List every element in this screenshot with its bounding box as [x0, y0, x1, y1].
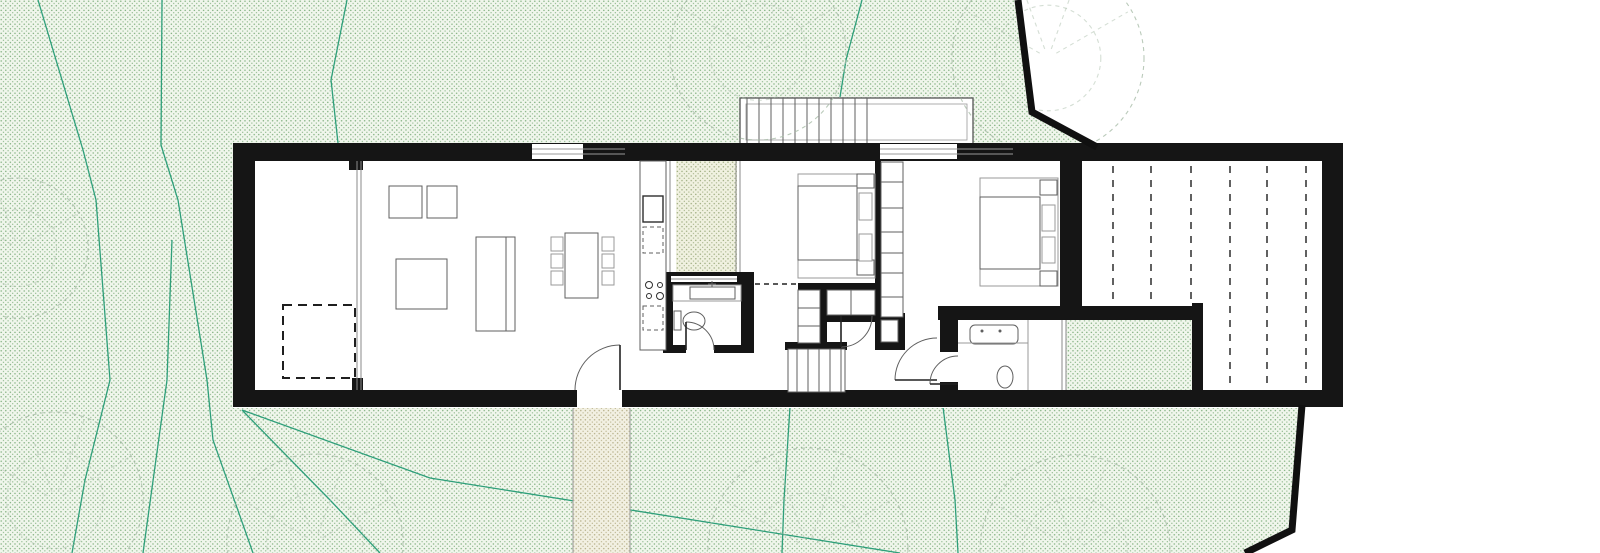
wall-west [233, 143, 255, 407]
wall-deck-east [1322, 148, 1343, 407]
entry-path [573, 407, 630, 553]
wardrobe-column [881, 162, 903, 317]
toilet-tank [674, 311, 681, 330]
bed-2-nightstand [1040, 180, 1057, 195]
site-plan-svg [0, 0, 1600, 553]
washbasin [690, 287, 735, 299]
entry-path [573, 407, 630, 553]
bed-2-nightstand [1040, 271, 1057, 286]
ottoman [396, 259, 447, 309]
wardrobe-cell [881, 320, 898, 342]
dining-table [565, 233, 598, 298]
armchair [389, 186, 422, 218]
dining-chair [602, 237, 614, 251]
kitchen-appliance [643, 196, 663, 222]
interior-stair [788, 349, 845, 392]
dining-chair [551, 271, 563, 285]
bed-1-nightstand [857, 174, 874, 188]
window [532, 144, 583, 159]
armchair [427, 186, 457, 218]
wall-deck-step [1192, 303, 1203, 390]
dining-chair [551, 254, 563, 268]
floor-plan-page [0, 0, 1600, 553]
bed-1-pillow [859, 234, 872, 261]
bed-2-mattress [980, 197, 1040, 269]
wall-north [233, 143, 1343, 161]
wall-bed2-deck [1060, 148, 1082, 320]
wall-closet-foot [875, 342, 905, 350]
bed-1-pillow [859, 193, 872, 220]
window [880, 144, 957, 159]
sofa [476, 237, 515, 331]
wall-bed1-south [798, 283, 881, 290]
wall-mid-band [938, 306, 1203, 320]
wall-powder-s2 [714, 345, 754, 353]
bed-2-pillow [1042, 237, 1055, 263]
courtyard-east [1066, 320, 1192, 390]
dining-chair [602, 254, 614, 268]
wall-powder-east [741, 272, 754, 345]
wall-closet-west [875, 161, 881, 350]
wall-closetB-s [825, 315, 875, 322]
hall-closet-a [798, 290, 820, 343]
tub-faucet [981, 330, 984, 333]
bed-1-mattress [798, 186, 857, 260]
wall-bath2-w1 [940, 320, 958, 352]
bathtub [970, 325, 1018, 344]
tub-faucet [999, 330, 1002, 333]
toilet [997, 366, 1013, 388]
kitchen-counter [640, 161, 666, 350]
courtyard-mid [676, 161, 737, 272]
kitchen [640, 161, 666, 350]
wall-south-west [233, 390, 577, 407]
bed-1-nightstand [857, 260, 874, 275]
bed-2-pillow [1042, 205, 1055, 231]
wall-south-east [622, 390, 1343, 407]
dining-chair [602, 271, 614, 285]
dining-chair [551, 237, 563, 251]
